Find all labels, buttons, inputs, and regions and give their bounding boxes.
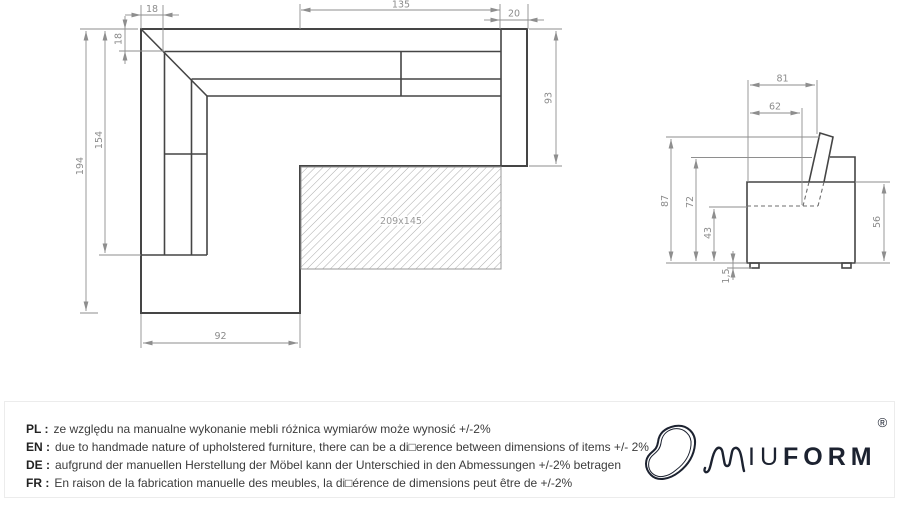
dim-depth: 93 <box>544 92 555 104</box>
disclaimer-line-en: EN :due to handmade nature of upholstere… <box>26 438 649 456</box>
registered-trademark-icon: ® <box>878 415 888 430</box>
disclaimer-line-pl: PL :ze względu na manualne wykonanie meb… <box>26 420 649 438</box>
side-view: 81 62 87 72 43 1,5 56 <box>660 74 890 284</box>
headrest <box>809 133 833 182</box>
dim-leg-height: 1,5 <box>721 268 732 283</box>
dim-armrest-right: 20 <box>508 9 520 20</box>
lang-code-pl: PL : <box>26 422 48 436</box>
lang-code-en: EN : <box>26 440 50 454</box>
miuform-bean-icon <box>642 421 698 483</box>
dim-depth-total: 81 <box>776 74 788 85</box>
miuform-logo: IUFORM ® <box>642 413 898 491</box>
dim-seat-length: 135 <box>392 0 410 11</box>
dim-chaise-length: 194 <box>75 157 86 175</box>
logo-text-form: FORM <box>783 445 877 470</box>
disclaimer-line-de: DE :aufgrund der manuellen Herstellung d… <box>26 456 649 474</box>
dim-armrest-top: 18 <box>146 4 158 15</box>
disclaimer-en-text: due to handmade nature of upholstered fu… <box>55 440 649 454</box>
backrest-top <box>830 157 855 182</box>
sofa-foot <box>750 263 759 268</box>
dim-backrest-height: 72 <box>685 196 696 208</box>
bed-area-label: 209x145 <box>380 216 422 227</box>
dim-body-height: 56 <box>872 216 883 228</box>
dim-backrest-depth: 18 <box>114 33 125 45</box>
lang-code-de: DE : <box>26 458 50 472</box>
sofa-foot <box>842 263 851 268</box>
miuform-letter-m-icon <box>702 444 746 474</box>
dim-chaise-width: 92 <box>214 331 226 342</box>
logo-text-iu: IU <box>748 445 783 470</box>
dim-height-total: 87 <box>660 195 671 207</box>
dim-seat-height: 43 <box>703 227 714 239</box>
technical-drawing-page: 209x145 <box>0 0 900 510</box>
disclaimer-line-fr: FR :En raison de la fabrication manuelle… <box>26 474 649 492</box>
disclaimer-fr-text: En raison de la fabrication manuelle des… <box>54 476 572 490</box>
sofa-body <box>747 182 855 263</box>
disclaimer-pl-text: ze względu na manualne wykonanie mebli r… <box>53 422 490 436</box>
plan-view: 209x145 <box>75 0 562 348</box>
dim-seat-depth: 62 <box>769 102 781 113</box>
disclaimer-de-text: aufgrund der manuellen Herstellung der M… <box>55 458 621 472</box>
lang-code-fr: FR : <box>26 476 49 490</box>
dim-chaise-cushion: 154 <box>94 131 105 149</box>
disclaimer-text: PL :ze względu na manualne wykonanie meb… <box>26 420 649 492</box>
dimension-drawing: 209x145 <box>0 0 900 400</box>
headrest-folded-dashed <box>747 182 824 206</box>
